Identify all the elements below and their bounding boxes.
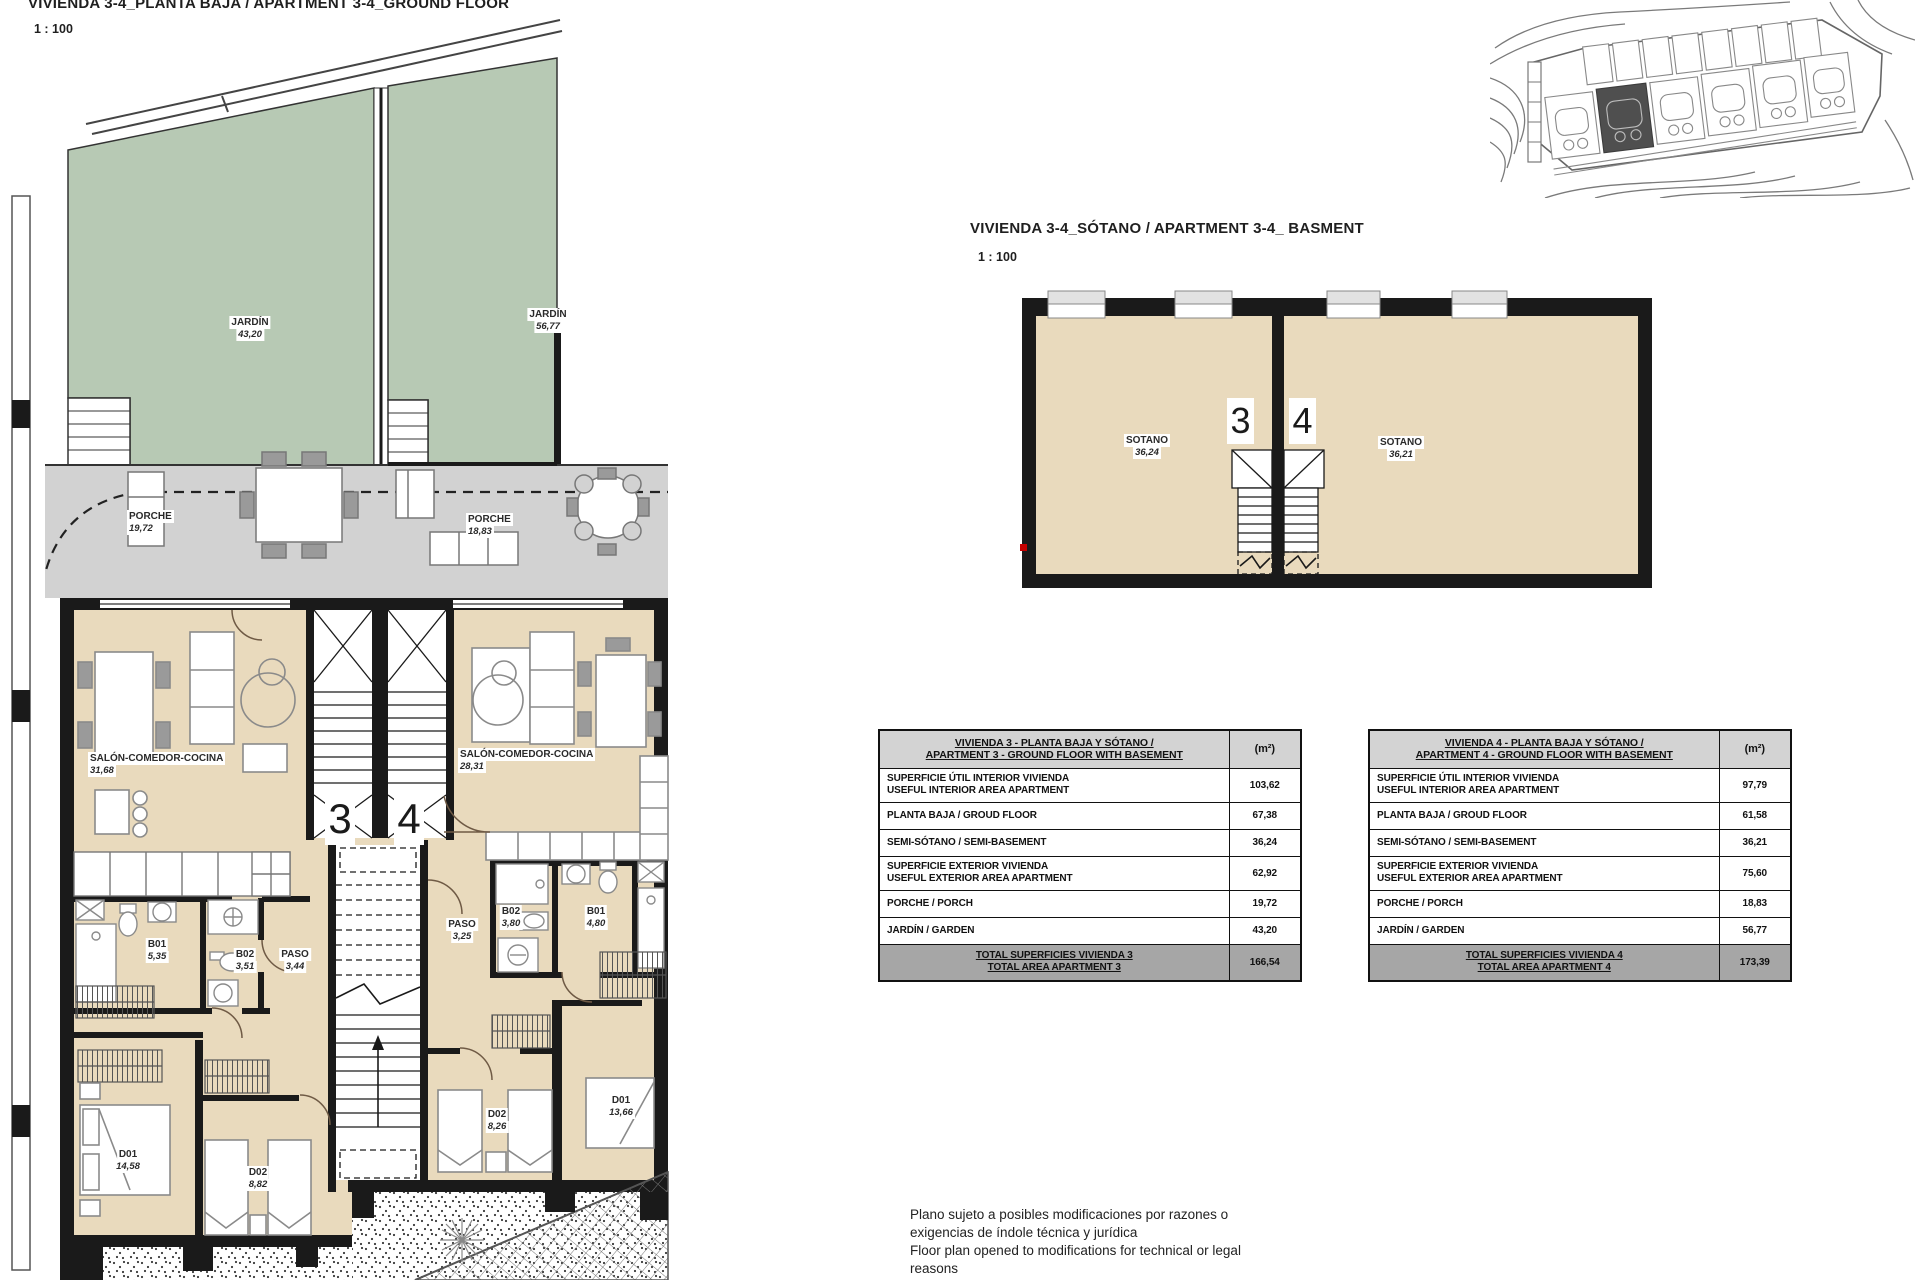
basement-scale: 1 : 100: [978, 250, 1017, 264]
room-label-paso-left: PASO 3,44: [279, 948, 311, 973]
garden-left: [68, 88, 374, 465]
room-label-b02-left: B02 3,51: [234, 948, 257, 973]
table-row: SUPERFICIE EXTERIOR VIVIENDAUSEFUL EXTER…: [879, 856, 1301, 890]
garden-divider-wall: [374, 88, 388, 465]
room-label-jardin-right: JARDÍN 56,77: [527, 308, 568, 333]
room-label-b01-left: B01 5,35: [146, 938, 169, 963]
site-location-map: [1490, 0, 1915, 198]
floor-plan-sheet: VIVIENDA 3-4_PLANTA BAJA / APARTMENT 3-4…: [0, 0, 1920, 1280]
room-label-jardin-left: JARDÍN 43,20: [229, 316, 270, 341]
area-table-apartment-4: VIVIENDA 4 - PLANTA BAJA Y SÓTANO / APAR…: [1368, 729, 1792, 982]
room-label-sotano-right: SOTANO 36,21: [1378, 436, 1424, 461]
room-label-d01-right: D01 13,66: [607, 1094, 635, 1119]
table-total-row: TOTAL SUPERFICIES VIVIENDA 3TOTAL AREA A…: [879, 944, 1301, 981]
room-label-b01-right: B01 4,80: [585, 905, 608, 930]
room-label-sotano-left: SOTANO 36,24: [1124, 434, 1170, 459]
table-total-row: TOTAL SUPERFICIES VIVIENDA 4TOTAL AREA A…: [1369, 944, 1791, 981]
table-row: PLANTA BAJA / GROUD FLOOR 67,38: [879, 802, 1301, 829]
table-row: SUPERFICIE EXTERIOR VIVIENDAUSEFUL EXTER…: [1369, 856, 1791, 890]
table-unit-header: (m²): [1229, 730, 1301, 768]
table-row: JARDÍN / GARDEN 56,77: [1369, 917, 1791, 944]
unit-number-4-basement: 4: [1289, 398, 1316, 444]
table-row: PORCHE / PORCH 18,83: [1369, 890, 1791, 917]
plant-symbol: [440, 1218, 484, 1262]
table-row: PORCHE / PORCH 19,72: [879, 890, 1301, 917]
table-unit-header: (m²): [1719, 730, 1791, 768]
table-row: SUPERFICIE ÚTIL INTERIOR VIVIENDAUSEFUL …: [1369, 768, 1791, 802]
table-row: SEMI-SÓTANO / SEMI-BASEMENT 36,21: [1369, 829, 1791, 856]
room-label-b02-right: B02 3,80: [500, 905, 523, 930]
area-table-apartment-3: VIVIENDA 3 - PLANTA BAJA Y SÓTANO / APAR…: [878, 729, 1302, 982]
basement-party-wall: [1272, 316, 1284, 574]
table-row: JARDÍN / GARDEN 43,20: [879, 917, 1301, 944]
garden-right: [388, 58, 561, 467]
map-highlighted-unit: [1596, 83, 1653, 153]
table-row: VIVIENDA 3 - PLANTA BAJA Y SÓTANO / APAR…: [879, 730, 1301, 768]
reference-mark: [1020, 544, 1027, 551]
disclaimer-note: Plano sujeto a posibles modificaciones p…: [910, 1206, 1241, 1278]
table-row: SUPERFICIE ÚTIL INTERIOR VIVIENDAUSEFUL …: [879, 768, 1301, 802]
basement-plan: [1015, 285, 1665, 595]
table-title: VIVIENDA 3 - PLANTA BAJA Y SÓTANO / APAR…: [879, 730, 1229, 768]
ground-floor-plan: [0, 0, 700, 1280]
room-label-porche-left: PORCHE 19,72: [127, 510, 174, 535]
basement-title: VIVIENDA 3-4_SÓTANO / APARTMENT 3-4_ BAS…: [970, 220, 1364, 237]
table-row: VIVIENDA 4 - PLANTA BAJA Y SÓTANO / APAR…: [1369, 730, 1791, 768]
unit-number-3-basement: 3: [1227, 398, 1254, 444]
table-row: PLANTA BAJA / GROUD FLOOR 61,58: [1369, 802, 1791, 829]
room-label-salon-right: SALÓN-COMEDOR-COCINA 28,31: [458, 748, 595, 773]
room-label-d02-left: D02 8,82: [247, 1166, 270, 1191]
room-label-d01-left: D01 14,58: [114, 1148, 142, 1173]
stair-core-lower: [336, 845, 420, 1180]
table-title: VIVIENDA 4 - PLANTA BAJA Y SÓTANO / APAR…: [1369, 730, 1719, 768]
kitchen-left: [74, 852, 290, 896]
room-label-salon-left: SALÓN-COMEDOR-COCINA 31,68: [88, 752, 225, 777]
room-label-porche-right: PORCHE 18,83: [466, 513, 513, 538]
table-row: SEMI-SÓTANO / SEMI-BASEMENT 36,24: [879, 829, 1301, 856]
room-label-d02-right: D02 8,26: [486, 1108, 509, 1133]
room-label-paso-right: PASO 3,25: [446, 918, 478, 943]
left-boundary-strip: [12, 196, 30, 1270]
unit-number-3-ground: 3: [325, 793, 355, 845]
unit-number-4-ground: 4: [394, 793, 424, 845]
